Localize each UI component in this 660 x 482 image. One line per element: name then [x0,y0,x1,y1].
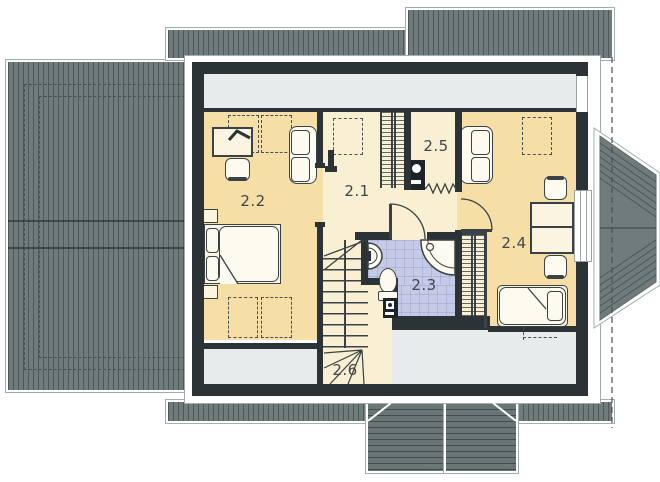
sofa-cushion [291,157,310,182]
wardrobe-edge [462,232,484,235]
exterior-wall-top [192,62,588,74]
stair-center-line [344,240,346,348]
bay-window-frame [586,190,587,262]
wardrobe-rail [474,235,476,317]
dormer-roof-right [446,403,516,471]
chair-back [547,275,564,279]
floor-plan: 2.2 2.1 2.5 2.4 2.3 2.6 [0,0,660,482]
door-leaf-bedroom-right [461,229,492,232]
roof-top-strip-high [408,10,612,58]
wardrobe-rail [391,112,393,188]
nightstand [202,209,218,223]
height-dashed-line [523,337,557,338]
boiler-vent [411,180,421,184]
toilet-bowl [379,268,397,293]
exterior-wall-left [192,62,204,396]
desk-divider [530,226,574,228]
door-jamb [315,163,325,168]
chair-back [228,177,247,181]
room-label-2-1: 2.1 [337,183,377,199]
room-label-2-2: 2.2 [233,193,273,209]
exterior-wall-right [576,262,588,396]
desk [212,127,253,157]
partition-wall-utility [404,112,411,190]
ceiling-height-line [204,343,317,349]
wardrobe-edge [380,112,382,188]
knee-wall-line-top [204,108,576,112]
bathroom-wall-top [355,232,392,240]
exterior-wall-right [576,62,588,76]
skylight-outline [333,118,363,155]
double-bed-mattress [219,226,279,282]
bathroom-wall-bottom [392,316,490,330]
low-ceiling-zone-below-bath [392,330,457,384]
wardrobe-rail [394,112,396,188]
desk [530,202,574,254]
balustrade-post-cap [325,166,337,172]
chair-back [547,176,564,180]
room-label-2-3: 2.3 [404,277,444,293]
exterior-wall-right [576,112,588,190]
sofa-cushion [471,157,490,182]
bay-roof-stripes [600,143,656,313]
pillow [547,291,563,321]
partition-wall-stairwell [317,222,323,384]
exterior-wall-bottom [192,384,588,396]
low-ceiling-zone-bottom-right [457,330,576,384]
skylight-outline [228,297,258,338]
door-leaf-bathroom [389,204,392,239]
sofa-cushion [471,130,490,155]
room-label-2-6: 2.6 [325,362,365,378]
dormer-roof-left [368,403,444,471]
roof-edge-dashed-outline [39,96,195,358]
low-ceiling-zone-top [204,74,576,108]
sofa-cushion [291,130,310,155]
bay-window [574,190,592,262]
bay-window-frame [580,190,581,262]
low-ceiling-zone-bottom-left [204,349,317,384]
skylight-outline [522,117,552,155]
pillow [206,256,219,281]
skylight-outline [261,297,292,338]
partition-wall-bedroom-right [455,230,462,328]
pillow [206,228,219,253]
partition-wall [317,112,323,168]
bay-roof [600,136,656,320]
bathroom-wall-top [427,232,455,240]
partition-wall-utility-right [455,108,462,192]
skylight-outline [261,115,292,153]
wardrobe-rail [471,235,473,317]
nightstand [202,285,218,299]
roof-top-strip [168,30,408,58]
room-label-2-4: 2.4 [494,235,534,251]
wardrobe [462,235,484,317]
washing-machine-panel [385,312,394,315]
boiler-cap [412,164,421,173]
bay-roof-outline [594,128,660,328]
washing-machine-door-dot [388,303,392,307]
window [576,76,588,112]
room-label-2-5: 2.5 [416,138,456,154]
door-jamb [315,222,325,227]
wardrobe [382,112,404,188]
wardrobe-edge [484,232,487,328]
